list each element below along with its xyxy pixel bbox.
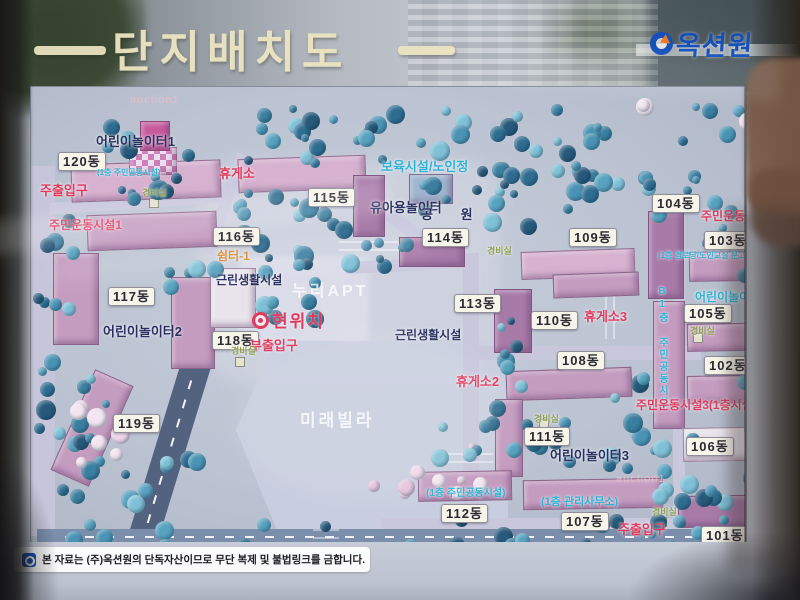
tree: [457, 476, 466, 485]
tree: [40, 382, 55, 397]
tree: [66, 246, 80, 260]
tree: [87, 408, 107, 428]
poi-label: 주민운동시설1: [49, 219, 122, 232]
building: [553, 272, 640, 299]
building-label: 116동: [213, 227, 260, 246]
tree: [529, 144, 543, 158]
tree: [374, 238, 384, 248]
poi-label: 경비실: [534, 415, 559, 424]
tree: [497, 323, 506, 332]
tree: [441, 106, 451, 116]
brand-logo: 옥션원: [650, 24, 754, 63]
building-label: 119동: [113, 414, 160, 433]
tree: [361, 240, 372, 251]
tree: [49, 298, 62, 311]
watermark-text: 누리APT: [292, 284, 368, 301]
poi-label: 경비실: [231, 347, 256, 356]
tree: [692, 176, 700, 184]
tree: [451, 125, 470, 144]
reflected-trees-topmiddle: [540, 0, 650, 72]
tree: [653, 439, 672, 458]
poi-label: 휴게소2: [456, 375, 499, 389]
tree: [553, 137, 562, 146]
tree: [188, 453, 206, 471]
tree: [510, 190, 518, 198]
tree: [507, 317, 515, 325]
poi-label: 어린이놀이터3: [550, 449, 629, 463]
tree: [739, 112, 746, 131]
tree: [479, 420, 492, 433]
tree: [309, 139, 326, 156]
tree: [719, 515, 729, 525]
tree: [489, 400, 506, 417]
tree: [237, 207, 251, 221]
tree: [581, 185, 599, 203]
tree: [257, 518, 271, 532]
tree: [702, 103, 718, 119]
building-label: 104동: [652, 194, 700, 213]
tree: [583, 133, 600, 150]
guard-post: [235, 357, 245, 367]
poi-label: 어린이놀이터1: [96, 135, 175, 149]
tree: [559, 145, 576, 162]
tree: [431, 449, 449, 467]
tree: [463, 448, 477, 462]
tree: [84, 519, 96, 531]
photographer-hand: [750, 168, 800, 246]
tree: [376, 255, 384, 263]
tree: [386, 105, 405, 124]
tree: [188, 260, 206, 278]
tree: [512, 111, 523, 122]
tree: [643, 178, 656, 191]
building-label: 117동: [108, 287, 155, 306]
poi-label: 휴게소3: [584, 310, 627, 324]
tree: [652, 488, 669, 505]
tree: [676, 518, 686, 528]
tree: [551, 104, 563, 116]
building-label: 103동: [704, 231, 746, 250]
tree: [257, 108, 272, 123]
footer-band: 본 자료는 (주)옥션원의 단독자산이므로 무단 복제 및 불법링크를 금합니다…: [0, 542, 800, 600]
poi-label: 공 원: [421, 208, 485, 222]
poi-label: 근린생활시설: [216, 274, 282, 287]
tree: [442, 195, 451, 204]
building-label: 109동: [569, 228, 617, 247]
poi-label: 휴게소: [219, 167, 255, 181]
tree: [500, 349, 510, 359]
tree: [127, 192, 141, 206]
poi-label: 주민운동시설3(1층시설): [636, 399, 746, 412]
building-label: 105동: [684, 304, 732, 323]
building-label: 115동: [308, 188, 355, 207]
tree: [571, 161, 581, 171]
tree: [623, 413, 643, 433]
photo-edge-right: [752, 0, 800, 600]
tree: [510, 340, 523, 353]
brand-logo-icon: [650, 32, 673, 55]
tree: [293, 259, 305, 271]
tree: [477, 166, 488, 177]
poi-label: 부출입구: [250, 339, 298, 353]
tree: [33, 293, 44, 304]
tree: [610, 393, 620, 403]
disclaimer-text: 본 자료는 (주)옥션원의 단독자산이므로 무단 복제 및 불법링크를 금합니다…: [42, 552, 365, 567]
building-label: 110동: [531, 311, 578, 330]
building-label: 107동: [561, 512, 609, 531]
title-dash-left: [34, 46, 106, 55]
poi-label: 주출입구: [618, 523, 666, 537]
poi-label: 경비실: [487, 247, 512, 256]
tree: [110, 448, 123, 461]
photo-edge-left: [0, 0, 34, 600]
tree: [503, 167, 520, 184]
tree: [160, 456, 174, 470]
tree: [329, 115, 338, 124]
tree: [265, 133, 281, 149]
tree: [302, 112, 320, 130]
tree: [40, 238, 55, 253]
tree: [611, 177, 625, 191]
tree: [127, 495, 145, 513]
tree: [76, 457, 87, 468]
tree: [62, 302, 76, 316]
tree: [118, 186, 126, 194]
tree: [593, 123, 602, 132]
tree: [680, 475, 699, 494]
building-label: 106동: [686, 437, 734, 456]
tree: [438, 422, 448, 432]
tree: [416, 138, 426, 148]
tree: [70, 403, 87, 420]
tree: [320, 521, 331, 532]
tree: [301, 134, 309, 142]
tree: [290, 198, 299, 207]
tree: [737, 374, 746, 390]
tree: [430, 141, 450, 161]
disclaimer-bar: 본 자료는 (주)옥션원의 단독자산이므로 무단 복제 및 불법링크를 금합니다…: [14, 547, 370, 572]
tree: [289, 105, 297, 113]
road: [125, 359, 211, 545]
tree: [102, 400, 110, 408]
poi-label: (1층 주민공동시설): [97, 169, 161, 177]
tree: [737, 268, 746, 283]
poi-label: (1층 관리사무소): [541, 497, 618, 509]
tree: [121, 470, 130, 479]
building-label: 113동: [454, 294, 501, 313]
poi-label: 경비실: [142, 189, 167, 198]
tree: [155, 521, 174, 540]
tree: [34, 423, 45, 434]
poi-label: 보육시설/노인정: [381, 160, 468, 174]
tree: [91, 435, 107, 451]
tree: [341, 254, 360, 273]
tree: [256, 123, 268, 135]
tree: [506, 442, 522, 458]
tree: [551, 164, 565, 178]
current-location-label: 현위치: [272, 307, 325, 332]
tree: [164, 267, 175, 278]
site-map-signboard-photo: 단지배치도 옥션원 120동116동115동114동113동110동109동10…: [0, 0, 800, 600]
tree: [419, 180, 429, 190]
poi-label: 경비실: [690, 327, 715, 336]
building-label: 108동: [557, 351, 605, 370]
tree: [368, 480, 380, 492]
tree: [637, 372, 650, 385]
poi-label: (1층 경로당/노인교실 문고시설): [658, 252, 746, 260]
tree: [335, 221, 353, 239]
brand-logo-text: 옥션원: [675, 24, 755, 63]
tree: [520, 168, 538, 186]
tree: [692, 103, 700, 111]
tree: [163, 279, 179, 295]
tree: [310, 158, 320, 168]
building-label: 102동: [704, 356, 746, 375]
title-dash-right: [398, 46, 455, 55]
building-label: 112동: [441, 504, 488, 523]
tree: [171, 173, 182, 184]
tree: [398, 479, 415, 496]
tree: [472, 185, 482, 195]
tree: [483, 213, 502, 232]
tree: [500, 360, 515, 375]
tree: [265, 254, 273, 262]
tree: [490, 126, 506, 142]
tree: [515, 380, 528, 393]
poi-label: 주출입구: [40, 184, 88, 198]
tree: [268, 189, 284, 205]
watermark-text: 미래빌라: [300, 412, 375, 430]
tree: [719, 126, 736, 143]
disclaimer-logo-icon: [22, 553, 36, 567]
tree: [400, 238, 414, 252]
tree: [70, 489, 85, 504]
tree: [182, 149, 195, 162]
tree: [520, 218, 537, 235]
poi-label: 경비실: [652, 508, 677, 517]
poi-label: 쉼터-1: [217, 250, 250, 263]
tree: [358, 130, 375, 147]
tree: [244, 189, 253, 198]
photographer-arm: [746, 58, 800, 216]
building-label: 111동: [524, 427, 570, 446]
building-label: 114동: [422, 228, 469, 247]
poi-label: 근린생활시설: [395, 329, 461, 342]
tree: [514, 136, 530, 152]
tree: [743, 469, 746, 487]
tree: [244, 156, 253, 165]
poi-label: (1층 주민공동시설): [426, 489, 505, 500]
tree: [637, 99, 650, 112]
poi-label: B1층 주민공동시설: [656, 286, 667, 409]
tree: [488, 195, 505, 212]
tree: [705, 485, 717, 497]
tree: [53, 427, 66, 440]
tree: [57, 484, 69, 496]
tree: [563, 204, 573, 214]
complex-map-panel: 120동116동115동114동113동110동109동108동104동103동…: [30, 86, 746, 545]
poi-label: 어린이놀이터4: [695, 291, 746, 304]
watermark-text: auction1: [130, 95, 180, 107]
poi-label: 주민운동시설2: [701, 210, 746, 223]
tree: [36, 400, 56, 420]
current-location-marker-icon: [252, 312, 269, 329]
poi-label: 어린이놀이터2: [103, 325, 182, 339]
tree: [86, 374, 96, 384]
reflected-building-windows: [408, 0, 658, 86]
tree: [432, 474, 446, 488]
watermark-text: auction1: [616, 474, 666, 486]
tree: [678, 136, 688, 146]
sign-title: 단지배치도: [112, 16, 349, 80]
tree: [410, 465, 425, 480]
tree: [44, 354, 61, 371]
